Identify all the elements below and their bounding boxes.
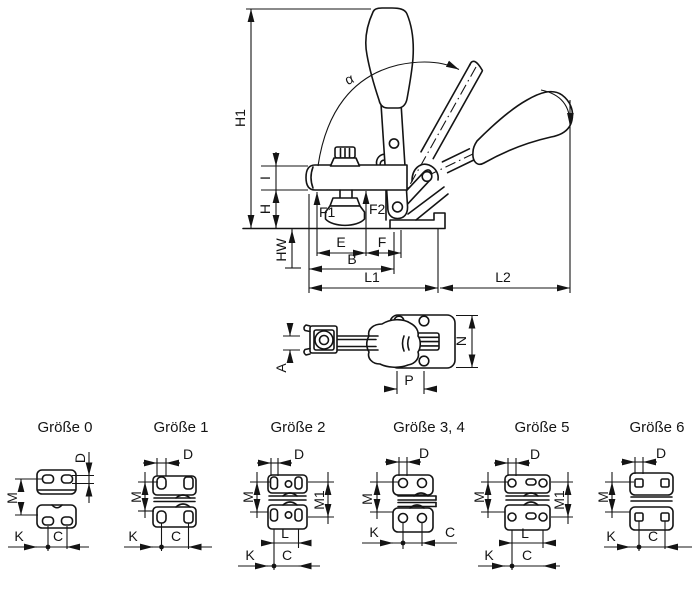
dim-label-c-0: C	[53, 528, 63, 544]
locking-screw-icon	[331, 147, 360, 166]
dim-label-c-2: C	[282, 547, 292, 563]
size-title-5: Größe 5	[514, 419, 569, 436]
dim-label-f1: F1	[319, 204, 336, 220]
dim-label-d-2: D	[294, 446, 304, 462]
dim-label-m-0: M	[4, 492, 20, 504]
dim-label-k-3-4: K	[369, 524, 379, 540]
dim-label-m-1: M	[128, 491, 144, 503]
dim-label-f: F	[378, 234, 387, 250]
dim-label-p: P	[404, 372, 413, 388]
dim-label-hw: HW	[273, 238, 289, 262]
dim-label-h1: H1	[232, 109, 248, 127]
size-variant-2: Größe 2 D M M1 L	[238, 419, 334, 570]
dim-label-m-6: M	[595, 491, 611, 503]
dim-label-c-5: C	[522, 547, 532, 563]
dim-label-n: N	[453, 336, 469, 346]
dim-label-d-5: D	[530, 446, 540, 462]
size-title-0: Größe 0	[37, 419, 92, 436]
toggle-clamp-technical-drawing: H1 I H HW F1 F2 E F	[0, 0, 700, 614]
top-view-body	[304, 315, 455, 368]
size-variant-5: Größe 5 D M M1 L	[471, 419, 573, 570]
size-variant-1: Größe 1 D M K C	[124, 419, 212, 551]
dim-label-e: E	[336, 234, 345, 250]
main-side-view: H1 I H HW F1 F2 E F	[232, 8, 573, 293]
dim-label-m-2: M	[240, 491, 256, 503]
dim-label-m1-2: M1	[311, 490, 327, 510]
dim-label-d-1: D	[183, 446, 193, 462]
dim-label-l-2: L	[281, 525, 289, 541]
dim-label-i: I	[257, 176, 273, 180]
dim-label-d-0: D	[72, 453, 88, 463]
dim-label-c-3-4: C	[445, 524, 455, 540]
dim-label-l1: L1	[364, 269, 380, 285]
size-title-2: Größe 2	[270, 419, 325, 436]
dim-label-c-6: C	[648, 528, 658, 544]
drawing-canvas: H1 I H HW F1 F2 E F	[0, 0, 700, 614]
dim-label-a: A	[273, 363, 289, 373]
spindle-nut-icon	[304, 325, 337, 355]
size-variant-0: Größe 0 D M K C	[4, 419, 94, 551]
size-title-1: Größe 1	[153, 419, 208, 436]
dim-label-d-3-4: D	[419, 445, 429, 461]
dim-label-k-6: K	[606, 528, 616, 544]
dim-label-h: H	[257, 204, 273, 214]
size-variant-3-4: Größe 3, 4 D M K C	[359, 419, 465, 549]
dim-label-k-0: K	[14, 528, 24, 544]
dim-label-k-1: K	[128, 528, 138, 544]
size-title-6: Größe 6	[629, 419, 684, 436]
dim-label-d-6: D	[656, 445, 666, 461]
size-variant-6: Größe 6 D M K C	[595, 419, 692, 551]
dim-label-c-1: C	[171, 528, 181, 544]
dim-label-l-5: L	[521, 525, 529, 541]
dim-label-m-3-4: M	[359, 493, 375, 505]
dim-label-k-5: K	[484, 547, 494, 563]
dim-label-alpha: α	[342, 70, 356, 88]
size-title-3-4: Größe 3, 4	[393, 419, 465, 436]
dim-label-b: B	[347, 251, 356, 267]
handle-mid-position-icon	[398, 61, 482, 206]
dim-label-l2: L2	[495, 269, 511, 285]
top-view: A N P	[273, 315, 478, 394]
dim-label-m1-5: M1	[551, 490, 567, 510]
dim-label-f2: F2	[369, 201, 386, 217]
dim-label-m-5: M	[471, 491, 487, 503]
dim-label-k-2: K	[245, 547, 255, 563]
